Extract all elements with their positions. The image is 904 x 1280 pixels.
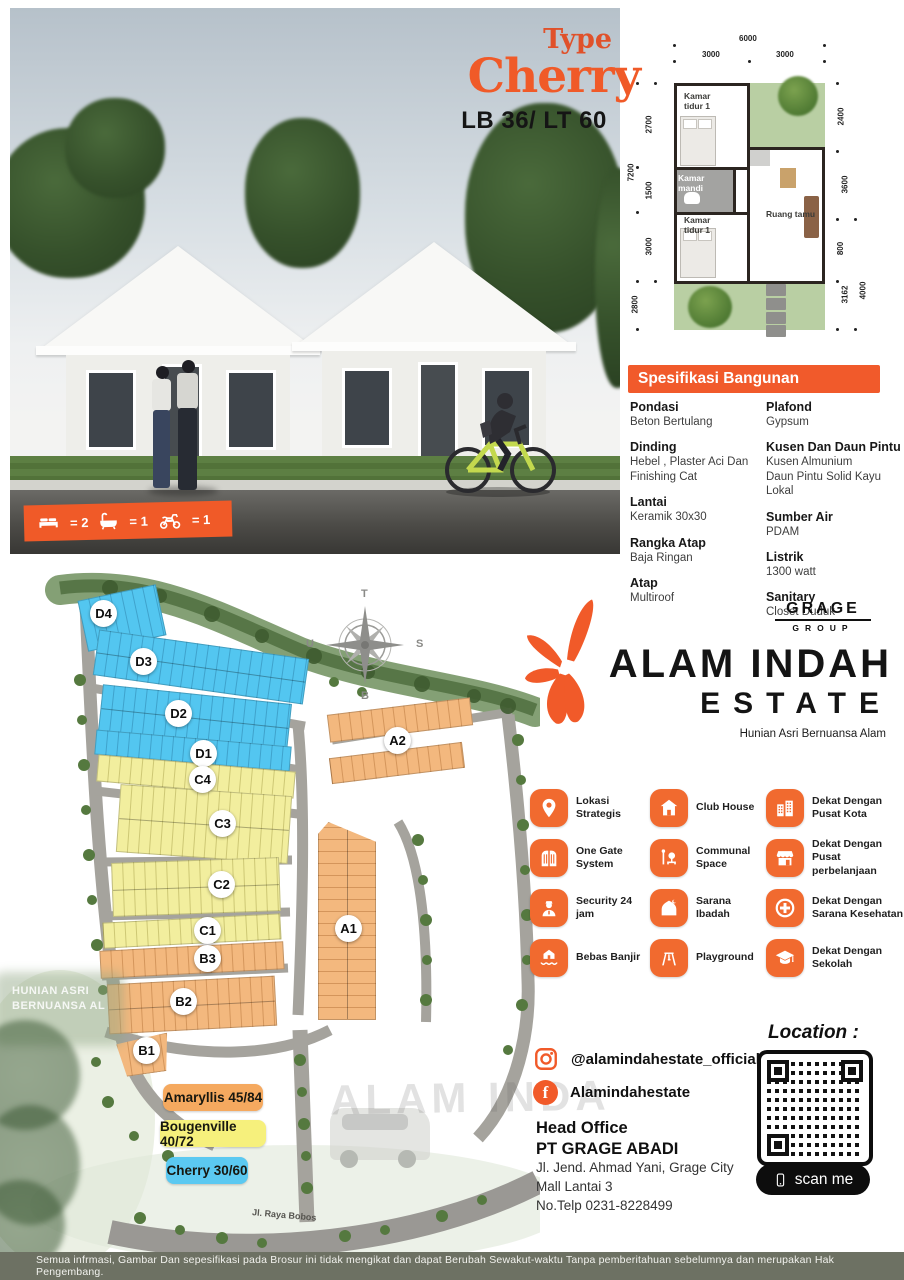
block-label: C2	[208, 871, 235, 898]
location-qr-code[interactable]	[757, 1050, 873, 1166]
dim-left-outer: 7200	[626, 164, 635, 182]
spec-label: Dinding	[630, 440, 762, 454]
dim-top-left: 3000	[702, 50, 720, 59]
compass-top: T	[361, 588, 368, 600]
grage-name: GRAGE	[775, 600, 871, 621]
bath-icon	[97, 510, 121, 533]
location-pin-icon	[530, 789, 568, 827]
legend-bougenville: Bougenville 40/72	[160, 1120, 266, 1147]
feature-label: One Gate System	[576, 845, 650, 871]
kitchen-counter	[750, 150, 770, 166]
block-label: B3	[194, 945, 221, 972]
dim-top-total: 6000	[739, 34, 757, 43]
facebook-handle: Alamindahestate	[570, 1084, 690, 1101]
scooter-icon	[157, 509, 184, 532]
bed-count: = 2	[70, 514, 89, 529]
block-label: A1	[335, 915, 362, 942]
feature-item: Dekat Dengan Pusat Kota	[766, 783, 904, 833]
block-label: A2	[384, 727, 411, 754]
feature-label: Playground	[696, 951, 754, 964]
type-name: Cherry	[428, 53, 640, 101]
spec-value: Kusen Almunium Daun Pintu Solid Kayu Lok…	[766, 455, 904, 498]
spec-label: Listrik	[766, 550, 904, 564]
feature-label: Dekat Dengan Pusat Kota	[812, 795, 904, 821]
company-name: PT GRAGE ABADI	[536, 1139, 766, 1160]
block-C3	[116, 784, 292, 864]
graduation-cap-icon	[766, 939, 804, 977]
toilet	[684, 192, 700, 204]
instagram-handle: @alamindahestate_official	[571, 1051, 760, 1068]
feature-item: Dekat Dengan Sekolah	[766, 933, 904, 983]
spec-label: Atap	[630, 576, 762, 590]
facebook-row[interactable]: f Alamindahestate	[533, 1080, 690, 1105]
watermark-tagline: HUNIAN ASRI BERNUANSA AL	[12, 984, 105, 1014]
type-size: LB 36/ LT 60	[428, 107, 640, 135]
room-label: Kamar mandi	[678, 174, 718, 194]
room-label: Kamar tidur 1	[684, 92, 726, 112]
site-plan: D4 D3 D2 D1 C4 C3 C2 C1 B3 B2 B1 A1 A2 T…	[0, 560, 540, 1260]
type-title: Type Cherry LB 36/ LT 60	[428, 26, 640, 135]
office-title: Head Office	[536, 1118, 766, 1139]
bed-icon	[36, 512, 62, 535]
spec-value: Baja Ringan	[630, 551, 762, 565]
spec-label: Plafond	[766, 400, 904, 414]
block-label: B2	[170, 988, 197, 1015]
paver	[766, 312, 786, 324]
spec-label: Sumber Air	[766, 510, 904, 524]
paver	[766, 325, 786, 337]
block-label: B1	[133, 1037, 160, 1064]
facebook-icon: f	[533, 1080, 558, 1105]
flood-free-icon	[530, 939, 568, 977]
estate-line1: ALAM INDAH	[598, 644, 892, 684]
feature-label: Bebas Banjir	[576, 951, 640, 964]
health-cross-icon	[766, 889, 804, 927]
paver	[766, 298, 786, 310]
floor-plan: Kamar tidur 1 Kamar mandi Kamar tidur 1 …	[628, 28, 904, 364]
attributes-ribbon: = 2 = 1 = 1	[24, 500, 233, 541]
instagram-icon	[533, 1046, 559, 1072]
feature-item: One Gate System	[530, 833, 650, 883]
feature-item: Dekat Dengan Sarana Kesehatan	[766, 883, 904, 933]
office-phone: No.Telp 0231-8228499	[536, 1197, 766, 1216]
dim-left: 2700	[644, 116, 653, 134]
spec-label: Rangka Atap	[630, 536, 762, 550]
feature-label: Club House	[696, 801, 754, 814]
dim-right: 3600	[840, 176, 849, 194]
legend-cherry: Cherry 30/60	[166, 1157, 248, 1184]
dim-right: 3162	[840, 286, 849, 304]
feature-label: Sarana Ibadah	[696, 895, 766, 921]
bath-count: = 1	[129, 513, 148, 528]
feature-item: Bebas Banjir	[530, 933, 650, 983]
dim-left: 3000	[644, 238, 653, 256]
office-address1: Jl. Jend. Ahmad Yani, Grage City	[536, 1159, 766, 1178]
block-label: D3	[130, 648, 157, 675]
compass-left: U	[306, 638, 314, 650]
feature-item: Playground	[650, 933, 766, 983]
spec-column-right: PlafondGypsum Kusen Dan Daun PintuKusen …	[766, 400, 904, 631]
mosque-icon	[650, 889, 688, 927]
legend-amaryllis: Amaryllis 45/84	[163, 1084, 263, 1111]
compass-bottom: B	[361, 690, 369, 702]
spec-label: Lantai	[630, 495, 762, 509]
footer-disclaimer: Semua infrmasi, Gambar Dan sepesifikasi …	[0, 1252, 904, 1280]
feature-label: Security 24 jam	[576, 895, 650, 921]
block-label: D4	[90, 600, 117, 627]
playground-icon	[650, 939, 688, 977]
block-C2	[111, 857, 281, 917]
compass-icon	[320, 600, 410, 690]
floorplan-tree	[688, 286, 732, 328]
feature-label: Communal Space	[696, 845, 766, 871]
dim-left: 1500	[644, 182, 653, 200]
office-address2: Mall Lantai 3	[536, 1178, 766, 1197]
feature-item: Communal Space	[650, 833, 766, 883]
feature-item: Sarana Ibadah	[650, 883, 766, 933]
spec-value: Multiroof	[630, 591, 762, 605]
block-label: C4	[189, 766, 216, 793]
location-title: Location :	[768, 1022, 888, 1044]
communal-space-icon	[650, 839, 688, 877]
features-grid: Lokasi Strategis Club House Dekat Dengan…	[530, 783, 904, 983]
spec-label: Pondasi	[630, 400, 762, 414]
block-label: C3	[209, 810, 236, 837]
estate-line2: ESTATE	[598, 687, 892, 722]
spec-value: 1300 watt	[766, 565, 904, 579]
feature-item: Security 24 jam	[530, 883, 650, 933]
block-label: D1	[190, 740, 217, 767]
estate-tagline: Hunian Asri Bernuansa Alam	[598, 728, 892, 740]
head-office-block: Head Office PT GRAGE ABADI Jl. Jend. Ahm…	[536, 1118, 766, 1216]
spec-column-left: PondasiBeton Bertulang DindingHebel , Pl…	[630, 400, 762, 616]
disclaimer-text: Semua infrmasi, Gambar Dan sepesifikasi …	[0, 1254, 904, 1278]
room-label: Ruang tamu	[766, 210, 818, 220]
spec-value: Keramik 30x30	[630, 510, 762, 524]
feature-label: Lokasi Strategis	[576, 795, 650, 821]
spec-value: PDAM	[766, 525, 904, 539]
spec-value: Beton Bertulang	[630, 415, 762, 429]
grage-sub: GROUP	[775, 623, 871, 633]
dim-top-right: 3000	[776, 50, 794, 59]
gate-icon	[530, 839, 568, 877]
block-label: C1	[194, 917, 221, 944]
city-buildings-icon	[766, 789, 804, 827]
spec-value: Hebel , Plaster Aci Dan Finishing Cat	[630, 455, 762, 484]
cyclist	[438, 386, 563, 498]
spec-label: Kusen Dan Daun Pintu	[766, 440, 904, 454]
feature-label: Dekat Dengan Sekolah	[812, 945, 904, 971]
paver	[766, 284, 786, 296]
dim-right: 2400	[836, 108, 845, 126]
spec-header: Spesifikasi Bangunan	[628, 365, 880, 393]
block-label: D2	[165, 700, 192, 727]
brochure-page: = 2 = 1 = 1 Type Cherry LB 36/ LT 60	[0, 0, 904, 1280]
instagram-row[interactable]: @alamindahestate_official	[533, 1046, 760, 1072]
scan-me-label: scan me	[795, 1171, 854, 1189]
floorplan-tree	[778, 76, 818, 116]
room-label: Kamar tidur 1	[684, 216, 726, 236]
feature-item: Lokasi Strategis	[530, 783, 650, 833]
phone-icon	[773, 1170, 788, 1190]
dim-right: 800	[836, 242, 845, 255]
security-guard-icon	[530, 889, 568, 927]
shop-awning-icon	[766, 839, 804, 877]
moto-count: = 1	[192, 511, 211, 526]
spec-value: Gypsum	[766, 415, 904, 429]
feature-item: Dekat Dengan Pusat perbelanjaan	[766, 833, 904, 883]
dim-right: 4000	[858, 282, 867, 300]
tree	[65, 98, 165, 198]
compass-right: S	[416, 638, 423, 650]
grage-group-logo: GRAGE GROUP	[775, 600, 871, 633]
feature-label: Dekat Dengan Sarana Kesehatan	[812, 895, 904, 921]
feature-label: Dekat Dengan Pusat perbelanjaan	[812, 838, 904, 877]
feature-item: Club House	[650, 783, 766, 833]
club-house-icon	[650, 789, 688, 827]
dim-left: 2800	[630, 296, 639, 314]
coffee-table	[780, 168, 796, 188]
scan-me-button[interactable]: scan me	[756, 1164, 870, 1195]
estate-name: ALAM INDAH ESTATE Hunian Asri Bernuansa …	[598, 644, 892, 740]
